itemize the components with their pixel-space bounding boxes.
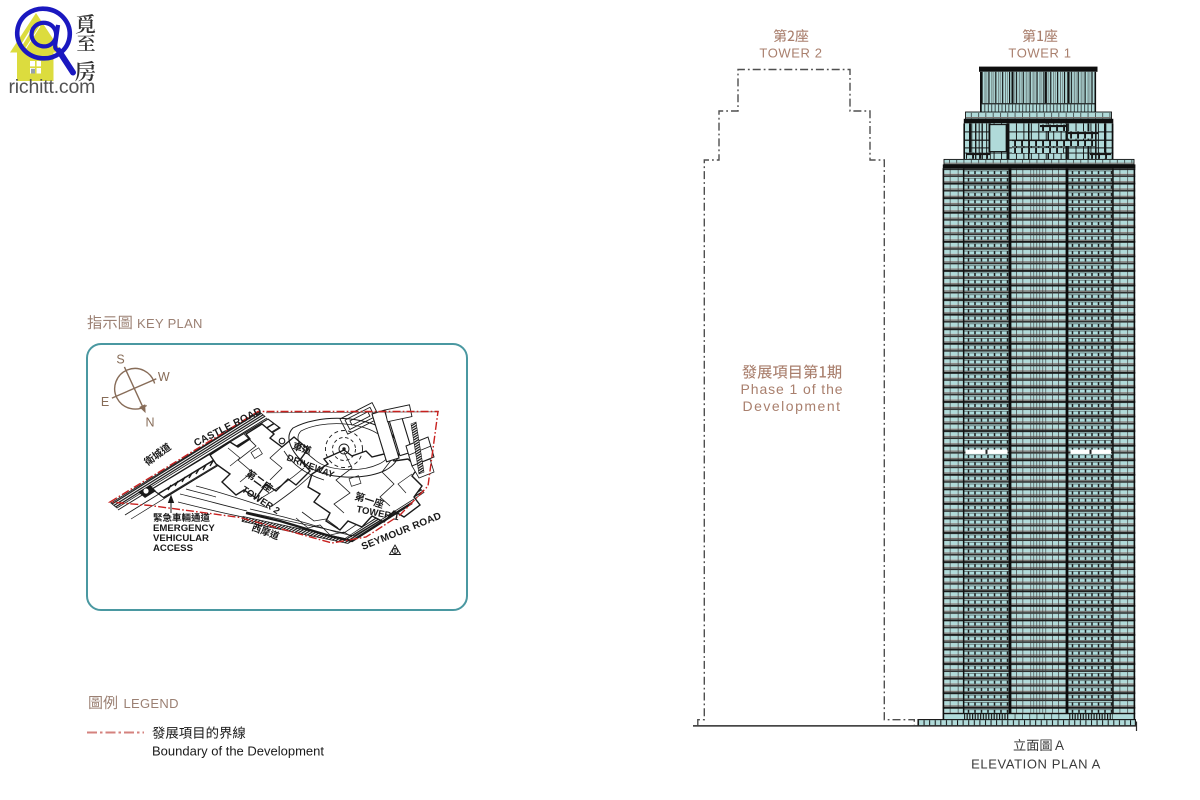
svg-text:Development: Development: [743, 398, 842, 414]
svg-text:ELEVATION PLAN A: ELEVATION PLAN A: [971, 757, 1101, 772]
svg-text:KEY PLAN: KEY PLAN: [137, 316, 203, 331]
svg-text:TOWER 2: TOWER 2: [759, 46, 822, 61]
svg-text:N: N: [145, 416, 154, 430]
svg-text:Phase 1 of the: Phase 1 of the: [741, 381, 844, 397]
svg-text:Boundary of the Development: Boundary of the Development: [152, 744, 324, 759]
svg-text:LEGEND: LEGEND: [124, 696, 179, 711]
svg-text:TOWER 1: TOWER 1: [1008, 46, 1071, 61]
svg-text:A: A: [1055, 738, 1064, 753]
svg-text:richitt.com: richitt.com: [9, 76, 96, 98]
svg-text:ACCESS: ACCESS: [153, 543, 194, 554]
svg-text:E: E: [101, 395, 109, 409]
svg-text:W: W: [158, 370, 170, 384]
svg-text:S: S: [116, 353, 124, 367]
